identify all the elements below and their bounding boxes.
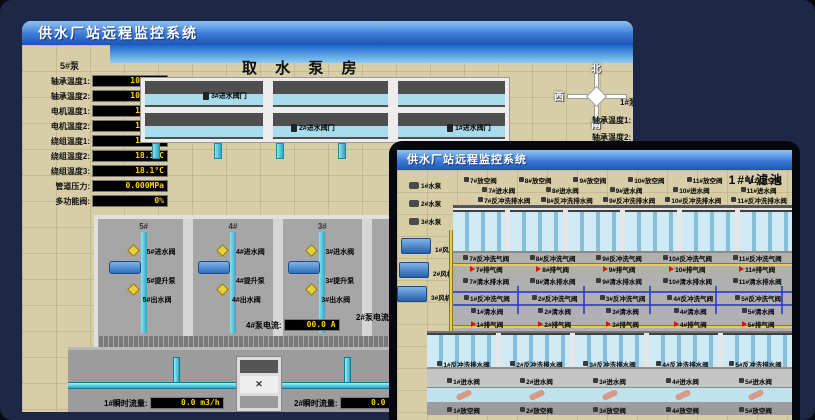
backwash-air-valve[interactable]: 4#反冲洗气阀 <box>667 293 713 303</box>
valve-icon[interactable] <box>532 295 537 300</box>
valve-label: 8#反冲洗排水阀 <box>547 195 593 205</box>
valve-label: 9#进水阀 <box>616 185 643 195</box>
valve-label: 2#进水阀 <box>526 376 553 386</box>
valve-label: 1#进水阀门 <box>455 123 491 133</box>
valve-icon[interactable] <box>610 187 615 192</box>
readout-label: 2#瞬时流量: <box>294 398 338 409</box>
valve-icon[interactable] <box>663 255 668 260</box>
readout-label: 轴承温度2: <box>26 91 92 102</box>
pump-unit-icon[interactable]: ✕ <box>236 356 282 412</box>
clean-drain-valve[interactable]: 8#清水排水阀 <box>530 276 576 286</box>
valve-icon[interactable] <box>437 361 442 366</box>
exhaust-valve-row: 7#排气阀8#排气阀9#排气阀10#排气阀11#排气阀 <box>453 264 792 273</box>
valve-icon[interactable] <box>464 177 469 182</box>
elbow-pipe <box>674 389 691 401</box>
valve-label: 5#反冲洗气阀 <box>741 293 781 303</box>
alarm-flag-icon[interactable] <box>471 321 476 327</box>
valve-icon[interactable] <box>593 407 598 412</box>
lift-pump-label: 4#提升泵 <box>236 276 265 286</box>
alarm-flag-icon[interactable] <box>470 266 475 272</box>
elbow-pipe <box>455 389 472 401</box>
elbow-pipe <box>601 389 618 401</box>
valve-label: 10#放空阀 <box>634 175 664 185</box>
pipe <box>173 357 180 383</box>
valve-icon[interactable] <box>447 378 452 383</box>
intake-valve[interactable]: 2#进水阀门 <box>291 123 335 133</box>
exhaust-valve[interactable]: 5#排气阀 <box>742 319 775 329</box>
readout-label: 电机温度2: <box>26 121 92 132</box>
valve-icon[interactable] <box>305 283 318 296</box>
exhaust-valve[interactable]: 1#排气阀 <box>471 319 504 329</box>
readout-value: 18.1°C <box>92 165 168 177</box>
valve-label: 7#反冲洗气阀 <box>469 253 509 263</box>
inlet-valve[interactable]: 9#进水阀 <box>610 185 643 195</box>
equipment-panel <box>240 360 278 373</box>
filter-scene: 1#V滤池 1#水泵 2#水泵 3#水泵 1#风机 <box>397 170 792 420</box>
backwash-air-valve[interactable]: 8#反冲洗气阀 <box>530 253 576 263</box>
clean-drain-valve[interactable]: 7#清水排水阀 <box>463 276 509 286</box>
backwash-drain-valve[interactable]: 7#反冲洗排水阀 <box>478 195 530 205</box>
alarm-flag-icon[interactable] <box>742 321 747 327</box>
exhaust-valve[interactable]: 4#排气阀 <box>674 319 707 329</box>
valve-icon[interactable] <box>520 407 525 412</box>
clean-water-valve[interactable]: 2#清水阀 <box>538 306 571 316</box>
readout-row: 管道压力: 0.000MPa <box>26 180 188 192</box>
alarm-flag-icon[interactable] <box>536 266 541 272</box>
readout-value: 00.0 A <box>284 319 340 331</box>
exhaust-valve[interactable]: 3#排气阀 <box>606 319 639 329</box>
valve-icon[interactable] <box>530 278 535 283</box>
valve-icon[interactable] <box>305 244 318 257</box>
valve-label: 12#放空阀 <box>751 175 781 185</box>
side-panel-title: 1#泵 <box>620 97 633 108</box>
equipment-column: 1#水泵 2#水泵 3#水泵 1#风机 2#风机 3#风机 <box>397 176 457 336</box>
pump-label: 1#水泵 <box>421 180 441 190</box>
valve-icon[interactable] <box>731 197 736 202</box>
compass-north: 北 <box>591 60 601 75</box>
valve-icon[interactable] <box>603 197 608 202</box>
backwash-air-valve[interactable]: 5#反冲洗气阀 <box>735 293 781 303</box>
valve-label: 3#进水阀 <box>599 376 626 386</box>
clean-drain-valve-row: 7#清水排水阀8#清水排水阀9#清水排水阀10#清水排水阀11#清水排水阀 <box>453 276 792 285</box>
backwash-drain-valve-row: 7#反冲洗排水阀8#反冲洗排水阀9#反冲洗排水阀10#反冲洗排水阀11#反冲洗排… <box>473 195 792 204</box>
valve-label: 1#进水阀 <box>453 376 480 386</box>
backwash-air-valve-row: 7#反冲洗气阀8#反冲洗气阀9#反冲洗气阀10#反冲洗气阀11#反冲洗气阀 <box>453 253 792 262</box>
valve-label: 9#反冲洗气阀 <box>602 253 642 263</box>
valve-icon[interactable] <box>673 187 678 192</box>
blower-icon[interactable]: 1#风机 <box>401 238 431 254</box>
valve-label: 3#排气阀 <box>612 319 639 329</box>
valve-label: 11#进水阀 <box>747 185 777 195</box>
valve-icon[interactable] <box>583 361 588 366</box>
inlet-trough <box>427 387 792 402</box>
vent-valve-row: 7#放空阀8#放空阀9#放空阀10#放空阀11#放空阀12#放空阀 <box>453 175 792 184</box>
valve-label: 10#反冲洗气阀 <box>669 253 712 263</box>
valve-icon[interactable] <box>733 255 738 260</box>
readout-label: 电机温度1: <box>26 106 92 117</box>
valve-label: 3#反冲洗气阀 <box>606 293 646 303</box>
valve-icon[interactable] <box>520 378 525 383</box>
valve-icon[interactable] <box>530 255 535 260</box>
backwash-air-valve[interactable]: 1#反冲洗气阀 <box>464 293 510 303</box>
pipe-gallery: 7#反冲洗气阀8#反冲洗气阀9#反冲洗气阀10#反冲洗气阀11#反冲洗气阀 7#… <box>453 251 792 331</box>
valve-icon[interactable] <box>519 177 524 182</box>
valve-label: 10#反冲洗排水阀 <box>671 195 721 205</box>
valve-icon[interactable] <box>600 295 605 300</box>
valve-icon[interactable] <box>667 295 672 300</box>
valve-icon[interactable] <box>593 378 598 383</box>
readout-label: 多功能阀: <box>26 196 92 207</box>
valve-label: 1#放空阀 <box>453 405 480 415</box>
valve-label: 8#反冲洗气阀 <box>536 253 576 263</box>
pump-label: 2#水泵 <box>421 198 441 208</box>
inlet-valve-row: 1#进水阀2#进水阀3#进水阀4#进水阀5#进水阀 <box>427 376 792 385</box>
outlet-valve-label: 4#出水阀 <box>232 295 261 305</box>
backwash-drain-valve[interactable]: 8#反冲洗排水阀 <box>541 195 593 205</box>
valve-label: 11#排气阀 <box>745 264 775 274</box>
backwash-drain-valve[interactable]: 11#反冲洗排水阀 <box>731 195 787 205</box>
valve-label: 10#清水排水阀 <box>669 276 712 286</box>
valve-icon[interactable] <box>733 278 738 283</box>
valve-label: 3#进水阀门 <box>211 91 247 101</box>
exhaust-valve-row: 1#排气阀2#排气阀3#排气阀4#排气阀5#排气阀 <box>453 319 792 328</box>
valve-icon[interactable] <box>447 407 452 412</box>
pipe <box>276 143 284 159</box>
readout-label: 1#瞬时流量: <box>104 398 148 409</box>
panel-title: 5#泵 <box>60 59 188 72</box>
water-pump[interactable]: 2#水泵 <box>409 198 441 208</box>
filter-cell <box>625 210 677 251</box>
valve-icon[interactable] <box>745 177 750 182</box>
valve-label: 8#排气阀 <box>542 264 569 274</box>
backwash-air-valve[interactable]: 3#反冲洗气阀 <box>600 293 646 303</box>
outlet-valve-label: 5#出水阀 <box>143 295 172 305</box>
valve-label: 8#放空阀 <box>525 175 552 185</box>
vent-valve[interactable]: 1#放空阀 <box>447 405 480 415</box>
pump-icon <box>409 182 419 189</box>
water-pump[interactable]: 3#水泵 <box>409 216 441 226</box>
inlet-valve-label: 4#进水阀 <box>236 247 265 257</box>
bay-number: 4# <box>193 219 272 231</box>
valve-icon[interactable] <box>463 278 468 283</box>
valve-label: 11#反冲洗气阀 <box>739 253 782 263</box>
clean-water-valve-row: 1#清水阀2#清水阀3#清水阀4#清水阀5#清水阀 <box>453 306 792 315</box>
backwash-air-valve[interactable]: 10#反冲洗气阀 <box>663 253 712 263</box>
intake-valve[interactable]: 3#进水阀门 <box>203 91 247 101</box>
lift-pump-label: 3#提升泵 <box>325 276 354 286</box>
valve-label: 8#进水阀 <box>552 185 579 195</box>
compass-west: 西 <box>554 88 564 103</box>
vent-valve[interactable]: 10#放空阀 <box>628 175 664 185</box>
valve-icon[interactable] <box>203 92 209 100</box>
front-ledge: 1#放空阀2#放空阀3#放空阀4#放空阀5#放空阀 <box>427 402 792 415</box>
pump-icon[interactable] <box>198 261 230 274</box>
valve-label: 5#进水阀 <box>745 376 772 386</box>
equipment-body: ✕ <box>240 376 278 393</box>
valve-icon[interactable] <box>216 244 229 257</box>
valve-label: 7#反冲洗排水阀 <box>484 195 530 205</box>
exhaust-valve[interactable]: 10#排气阀 <box>669 264 705 274</box>
valve-label: 5#放空阀 <box>745 405 772 415</box>
valve-label: 5#排气阀 <box>748 319 775 329</box>
valve-icon[interactable] <box>546 187 551 192</box>
valve-icon[interactable] <box>687 177 692 182</box>
backwash-air-valve[interactable]: 2#反冲洗气阀 <box>532 293 578 303</box>
valve-icon[interactable] <box>656 361 661 366</box>
valve-label: 3#清水阀 <box>612 306 639 316</box>
valve-label: 3#放空阀 <box>599 405 626 415</box>
valve-icon[interactable] <box>127 244 140 257</box>
valve-label: 9#清水排水阀 <box>602 276 642 286</box>
inlet-valve-label: 5#进水阀 <box>147 247 176 257</box>
readout-row: 绕组温度3: 18.1°C <box>26 165 188 177</box>
readout-value: 0.000MPa <box>92 180 168 192</box>
intake-valve[interactable]: 1#进水阀门 <box>447 123 491 133</box>
alarm-flag-icon[interactable] <box>606 321 611 327</box>
pump-label: 3#水泵 <box>421 216 441 226</box>
valve-icon[interactable] <box>596 255 601 260</box>
backwash-drain-valve[interactable]: 9#反冲洗排水阀 <box>603 195 655 205</box>
blower-icon[interactable]: 3#风机 <box>397 286 427 302</box>
valve-label: 1#清水阀 <box>477 306 504 316</box>
inlet-valve[interactable]: 11#进水阀 <box>741 185 777 195</box>
valve-icon[interactable] <box>674 308 679 313</box>
valve-label: 9#排气阀 <box>609 264 636 274</box>
intake-channel <box>145 81 505 107</box>
valve-label: 2#放空阀 <box>526 405 553 415</box>
clean-drain-valve[interactable]: 10#清水排水阀 <box>663 276 712 286</box>
valve-label: 10#进水阀 <box>679 185 709 195</box>
blower-icon[interactable]: 2#风机 <box>399 262 429 278</box>
desktop: 供水厂站远程监控系统 取 水 泵 房 5#泵 轴承温度1: 100.0°C <box>0 0 815 420</box>
pump-icon[interactable] <box>288 261 320 274</box>
readout-row: 绕组温度2: 18.1°C <box>26 150 188 162</box>
pump2-current-label: 2#泵电流 <box>356 312 389 323</box>
exhaust-valve[interactable]: 8#排气阀 <box>536 264 569 274</box>
outlet-valve-label: 3#出水阀 <box>321 295 350 305</box>
readout-value: 0% <box>92 195 168 207</box>
valve-label: 4#反冲洗气阀 <box>673 293 713 303</box>
readout-label: 管道压力: <box>26 181 92 192</box>
valve-label: 2#排气阀 <box>544 319 571 329</box>
inlet-valve[interactable]: 2#进水阀 <box>520 376 553 386</box>
side-panel-label: 轴承温度1: <box>592 115 631 126</box>
vent-valve[interactable]: 9#放空阀 <box>573 175 606 185</box>
valve-icon[interactable] <box>482 187 487 192</box>
equipment-base <box>240 396 278 408</box>
valve-label: 11#反冲洗排水阀 <box>737 195 787 205</box>
inlet-valve-label: 3#进水阀 <box>325 247 354 257</box>
alarm-flag-icon[interactable] <box>739 266 744 272</box>
filter-cell <box>740 210 792 251</box>
pipe <box>214 143 222 159</box>
vent-valve[interactable]: 4#放空阀 <box>666 405 699 415</box>
valve-icon[interactable] <box>735 295 740 300</box>
inlet-valve[interactable]: 3#进水阀 <box>593 376 626 386</box>
bay-number: 3# <box>283 219 362 231</box>
readout-row: 多功能阀: 0% <box>26 195 188 207</box>
exhaust-valve[interactable]: 11#排气阀 <box>739 264 775 274</box>
valve-label: 4#放空阀 <box>672 405 699 415</box>
readout-label: 绕组温度3: <box>26 166 92 177</box>
valve-icon[interactable] <box>596 278 601 283</box>
valve-label: 1#反冲洗气阀 <box>470 293 510 303</box>
inlet-valve[interactable]: 7#进水阀 <box>482 185 515 195</box>
backwash-air-valve-row: 1#反冲洗气阀2#反冲洗气阀3#反冲洗气阀4#反冲洗气阀5#反冲洗气阀 <box>453 293 792 302</box>
valve-icon[interactable] <box>447 124 453 132</box>
valve-icon[interactable] <box>665 197 670 202</box>
filter-cell <box>682 210 734 251</box>
valve-label: 2#反冲洗气阀 <box>538 293 578 303</box>
valve-icon[interactable] <box>742 308 747 313</box>
walkway: 1#进水阀2#进水阀3#进水阀4#进水阀5#进水阀 <box>427 367 792 387</box>
vent-valve[interactable]: 8#放空阀 <box>519 175 552 185</box>
water <box>145 94 505 105</box>
intake-channels: 3#进水阀门 2#进水阀门 1#进水阀门 <box>140 77 510 143</box>
backwash-air-valve[interactable]: 9#反冲洗气阀 <box>596 253 642 263</box>
valve-label: 4#排气阀 <box>680 319 707 329</box>
exhaust-valve[interactable]: 2#排气阀 <box>538 319 571 329</box>
valve-icon[interactable] <box>463 255 468 260</box>
filter-cell <box>453 210 505 251</box>
valve-icon[interactable] <box>628 177 633 182</box>
window-filter-pool: 供水厂站远程监控系统 1#V滤池 1#水泵 2#水泵 3#水泵 1#风机 <box>389 141 800 420</box>
inlet-valve[interactable]: 8#进水阀 <box>546 185 579 195</box>
valve-label: 11#放空阀 <box>693 175 723 185</box>
valve-icon[interactable] <box>127 283 140 296</box>
valve-icon[interactable] <box>666 378 671 383</box>
filter-cell <box>568 210 620 251</box>
bay-number: 5# <box>104 219 183 231</box>
valve-label: 4#进水阀 <box>672 376 699 386</box>
valve-label: 9#反冲洗排水阀 <box>609 195 655 205</box>
lift-pump-label: 5#提升泵 <box>147 276 176 286</box>
vent-valve[interactable]: 11#放空阀 <box>687 175 723 185</box>
valve-label: 5#清水阀 <box>748 306 775 316</box>
channel-divider <box>263 81 273 107</box>
clean-water-valve[interactable]: 1#清水阀 <box>471 306 504 316</box>
compass-center <box>586 86 607 107</box>
scene-title: 取 水 泵 房 <box>242 57 364 78</box>
channel-divider <box>388 81 398 107</box>
pump4-current-readout: 4#泵电流: 00.0 A <box>246 319 340 331</box>
channel-divider <box>388 113 398 139</box>
backwash-air-valve[interactable]: 7#反冲洗气阀 <box>463 253 509 263</box>
clean-drain-valve[interactable]: 11#清水排水阀 <box>733 276 782 286</box>
valve-icon[interactable] <box>663 278 668 283</box>
valve-label: 2#清水阀 <box>544 306 571 316</box>
pipe <box>344 357 351 383</box>
clean-water-valve[interactable]: 4#清水阀 <box>674 306 707 316</box>
clean-drain-valve[interactable]: 9#清水排水阀 <box>596 276 642 286</box>
valve-label: 10#排气阀 <box>675 264 705 274</box>
pump-icon[interactable] <box>109 261 141 274</box>
valve-label: 7#清水排水阀 <box>469 276 509 286</box>
exhaust-valve[interactable]: 7#排气阀 <box>470 264 503 274</box>
valve-icon[interactable] <box>741 187 746 192</box>
valve-icon[interactable] <box>541 197 546 202</box>
clean-water-valve[interactable]: 3#清水阀 <box>606 306 639 316</box>
pump-bay: 5# 5#进水阀 5#提升泵 5#出水阀 <box>104 219 193 347</box>
valve-icon[interactable] <box>666 407 671 412</box>
pump-icon <box>409 200 419 207</box>
vent-valve[interactable]: 3#放空阀 <box>593 405 626 415</box>
readout-label: 绕组温度1: <box>26 136 92 147</box>
vent-valve[interactable]: 12#放空阀 <box>745 175 781 185</box>
vent-valve[interactable]: 7#放空阀 <box>464 175 497 185</box>
valve-label: 9#放空阀 <box>579 175 606 185</box>
inlet-valve[interactable]: 1#进水阀 <box>447 376 480 386</box>
valve-icon[interactable] <box>606 308 611 313</box>
valve-icon[interactable] <box>478 197 483 202</box>
channel-divider <box>263 113 273 139</box>
valve-icon[interactable] <box>510 361 515 366</box>
valve-icon[interactable] <box>729 361 734 366</box>
readout-label: 绕组温度2: <box>26 151 92 162</box>
pipe <box>338 143 346 159</box>
vent-valve-row: 1#放空阀2#放空阀3#放空阀4#放空阀5#放空阀 <box>427 405 792 414</box>
valve-label: 7#排气阀 <box>476 264 503 274</box>
valve-icon[interactable] <box>464 295 469 300</box>
valve-label: 7#进水阀 <box>488 185 515 195</box>
readout-label: 4#泵电流: <box>246 320 282 331</box>
valve-label: 4#清水阀 <box>680 306 707 316</box>
readout-label: 轴承温度1: <box>26 76 92 87</box>
valve-icon[interactable] <box>291 124 297 132</box>
inlet-valve[interactable]: 5#进水阀 <box>739 376 772 386</box>
valve-label: 11#清水排水阀 <box>739 276 782 286</box>
vent-valve[interactable]: 5#放空阀 <box>739 405 772 415</box>
elbow-pipe <box>747 389 764 401</box>
titlebar[interactable]: 供水厂站远程监控系统 <box>397 150 792 170</box>
readout-value: 0.0 m3/h <box>150 397 224 409</box>
valve-label: 1#排气阀 <box>477 319 504 329</box>
backwash-drain-valve[interactable]: 10#反冲洗排水阀 <box>665 195 721 205</box>
valve-icon[interactable] <box>538 308 543 313</box>
back-filter-pools <box>453 205 792 251</box>
alarm-flag-icon[interactable] <box>674 321 679 327</box>
valve-icon[interactable] <box>573 177 578 182</box>
valve-icon[interactable] <box>739 407 744 412</box>
valve-icon[interactable] <box>216 283 229 296</box>
water-pump[interactable]: 1#水泵 <box>409 180 441 190</box>
vent-valve[interactable]: 2#放空阀 <box>520 405 553 415</box>
clean-water-valve[interactable]: 5#清水阀 <box>742 306 775 316</box>
alarm-flag-icon[interactable] <box>603 266 608 272</box>
pipe <box>152 143 160 159</box>
titlebar[interactable]: 供水厂站远程监控系统 <box>22 21 633 45</box>
valve-icon[interactable] <box>739 378 744 383</box>
filter-cell <box>510 210 562 251</box>
alarm-flag-icon[interactable] <box>538 321 543 327</box>
valve-label: 8#清水排水阀 <box>536 276 576 286</box>
elbow-pipe <box>528 389 545 401</box>
inlet-valve[interactable]: 10#进水阀 <box>673 185 709 195</box>
sky <box>110 45 633 63</box>
flow-readout-1: 1#瞬时流量: 0.0 m3/h <box>104 397 224 409</box>
alarm-flag-icon[interactable] <box>669 266 674 272</box>
inlet-valve[interactable]: 4#进水阀 <box>666 376 699 386</box>
valve-icon[interactable] <box>471 308 476 313</box>
valve-label: 7#放空阀 <box>470 175 497 185</box>
valve-label: 2#进水阀门 <box>299 123 335 133</box>
exhaust-valve[interactable]: 9#排气阀 <box>603 264 636 274</box>
backwash-air-valve[interactable]: 11#反冲洗气阀 <box>733 253 782 263</box>
inlet-valve-row: 7#进水阀8#进水阀9#进水阀10#进水阀11#进水阀 <box>467 185 792 194</box>
pump-icon <box>409 218 419 225</box>
